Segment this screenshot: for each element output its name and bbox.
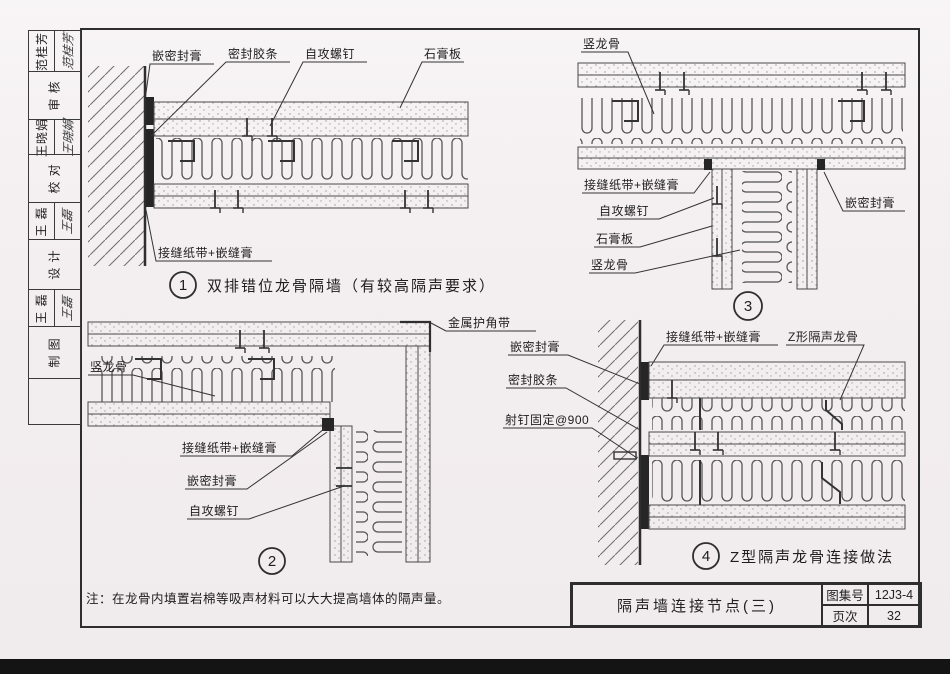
sealant-strip <box>146 97 154 125</box>
sealant-strip <box>704 159 712 170</box>
label-tape: 接缝纸带+嵌缝膏 <box>182 440 277 455</box>
detail-number: 1 <box>179 277 187 294</box>
label-tape: 接缝纸带+嵌缝膏 <box>584 177 679 192</box>
label-screw: 自攻螺钉 <box>305 47 355 61</box>
detail-1-caption: 双排错位龙骨隔墙（有较高隔声要求） <box>207 277 496 295</box>
scanned-drawing-page: 范桂芳 范桂芳 审 核 王晓娟 王晓娟 校 对 王 磊 王磊 设 计 王 磊 王… <box>0 0 950 674</box>
label-screw: 自攻螺钉 <box>189 504 239 518</box>
atlas-number-value: 12J3-4 <box>868 584 920 605</box>
label-sealant: 嵌密封膏 <box>845 195 895 210</box>
label-tape: 接缝纸带+嵌缝膏 <box>666 329 761 344</box>
detail-3-drawing: 竖龙骨 接缝纸带+嵌缝膏 自攻螺钉 石膏板 竖龙骨 嵌密封膏 3 <box>578 37 905 320</box>
title-block: 隔声墙连接节点(三) 图集号 12J3-4 页次 32 <box>570 582 922 628</box>
scan-edge <box>0 659 950 674</box>
page-number-value: 32 <box>868 605 920 626</box>
sheet-title: 隔声墙连接节点(三) <box>572 584 822 626</box>
label-sealant: 嵌密封膏 <box>187 473 237 488</box>
page-number-label: 页次 <box>822 605 868 626</box>
label-sealant: 嵌密封膏 <box>152 48 202 63</box>
detail-4-drawing: 嵌密封膏 密封胶条 射钉固定@900 接缝纸带+嵌缝膏 Z形隔声龙骨 4 Z型隔… <box>503 320 905 569</box>
label-stud: 竖龙骨 <box>90 360 128 374</box>
label-corner-bead: 金属护角带 <box>448 315 511 330</box>
stud-infill-vertical <box>356 430 402 556</box>
details-canvas: 嵌密封膏 密封胶条 自攻螺钉 石膏板 接缝纸带+嵌缝膏 1 双排错位龙骨隔墙（有… <box>0 0 950 674</box>
label-screw: 自攻螺钉 <box>599 204 649 218</box>
label-sealant: 嵌密封膏 <box>510 339 560 354</box>
sealant-strip <box>146 129 154 207</box>
concrete-wall-hatch <box>88 66 144 266</box>
detail-number: 3 <box>744 298 752 315</box>
label-stud-top: 竖龙骨 <box>583 37 621 51</box>
label-gasket: 密封胶条 <box>508 372 558 387</box>
label-stud: 竖龙骨 <box>591 258 629 272</box>
label-board: 石膏板 <box>596 231 634 246</box>
sealant-strip <box>641 455 649 529</box>
label-gasket: 密封胶条 <box>228 46 278 61</box>
sealant-strip <box>817 159 825 170</box>
sealant-strip <box>641 362 649 400</box>
detail-number: 4 <box>702 548 710 565</box>
label-tape: 接缝纸带+嵌缝膏 <box>158 245 253 260</box>
stud-infill <box>156 138 468 184</box>
stud-infill-vertical <box>742 171 792 283</box>
stud-infill <box>652 398 905 430</box>
detail-4-caption: Z型隔声龙骨连接做法 <box>730 548 894 566</box>
detail-2-drawing: 竖龙骨 金属护角带 接缝纸带+嵌缝膏 嵌密封膏 自攻螺钉 2 <box>88 315 536 574</box>
general-note: 注：在龙骨内填置岩棉等吸声材料可以大大提高墙体的隔声量。 <box>86 588 606 607</box>
label-board: 石膏板 <box>424 46 462 61</box>
atlas-number-label: 图集号 <box>822 584 868 605</box>
detail-number: 2 <box>268 553 276 570</box>
stud-infill <box>652 460 905 505</box>
label-z-stud: Z形隔声龙骨 <box>788 330 858 344</box>
concrete-wall-hatch <box>598 320 638 565</box>
detail-1-drawing: 嵌密封膏 密封胶条 自攻螺钉 石膏板 接缝纸带+嵌缝膏 1 双排错位龙骨隔墙（有… <box>88 46 496 298</box>
stud-infill <box>95 356 335 402</box>
label-nail: 射钉固定@900 <box>505 412 589 427</box>
